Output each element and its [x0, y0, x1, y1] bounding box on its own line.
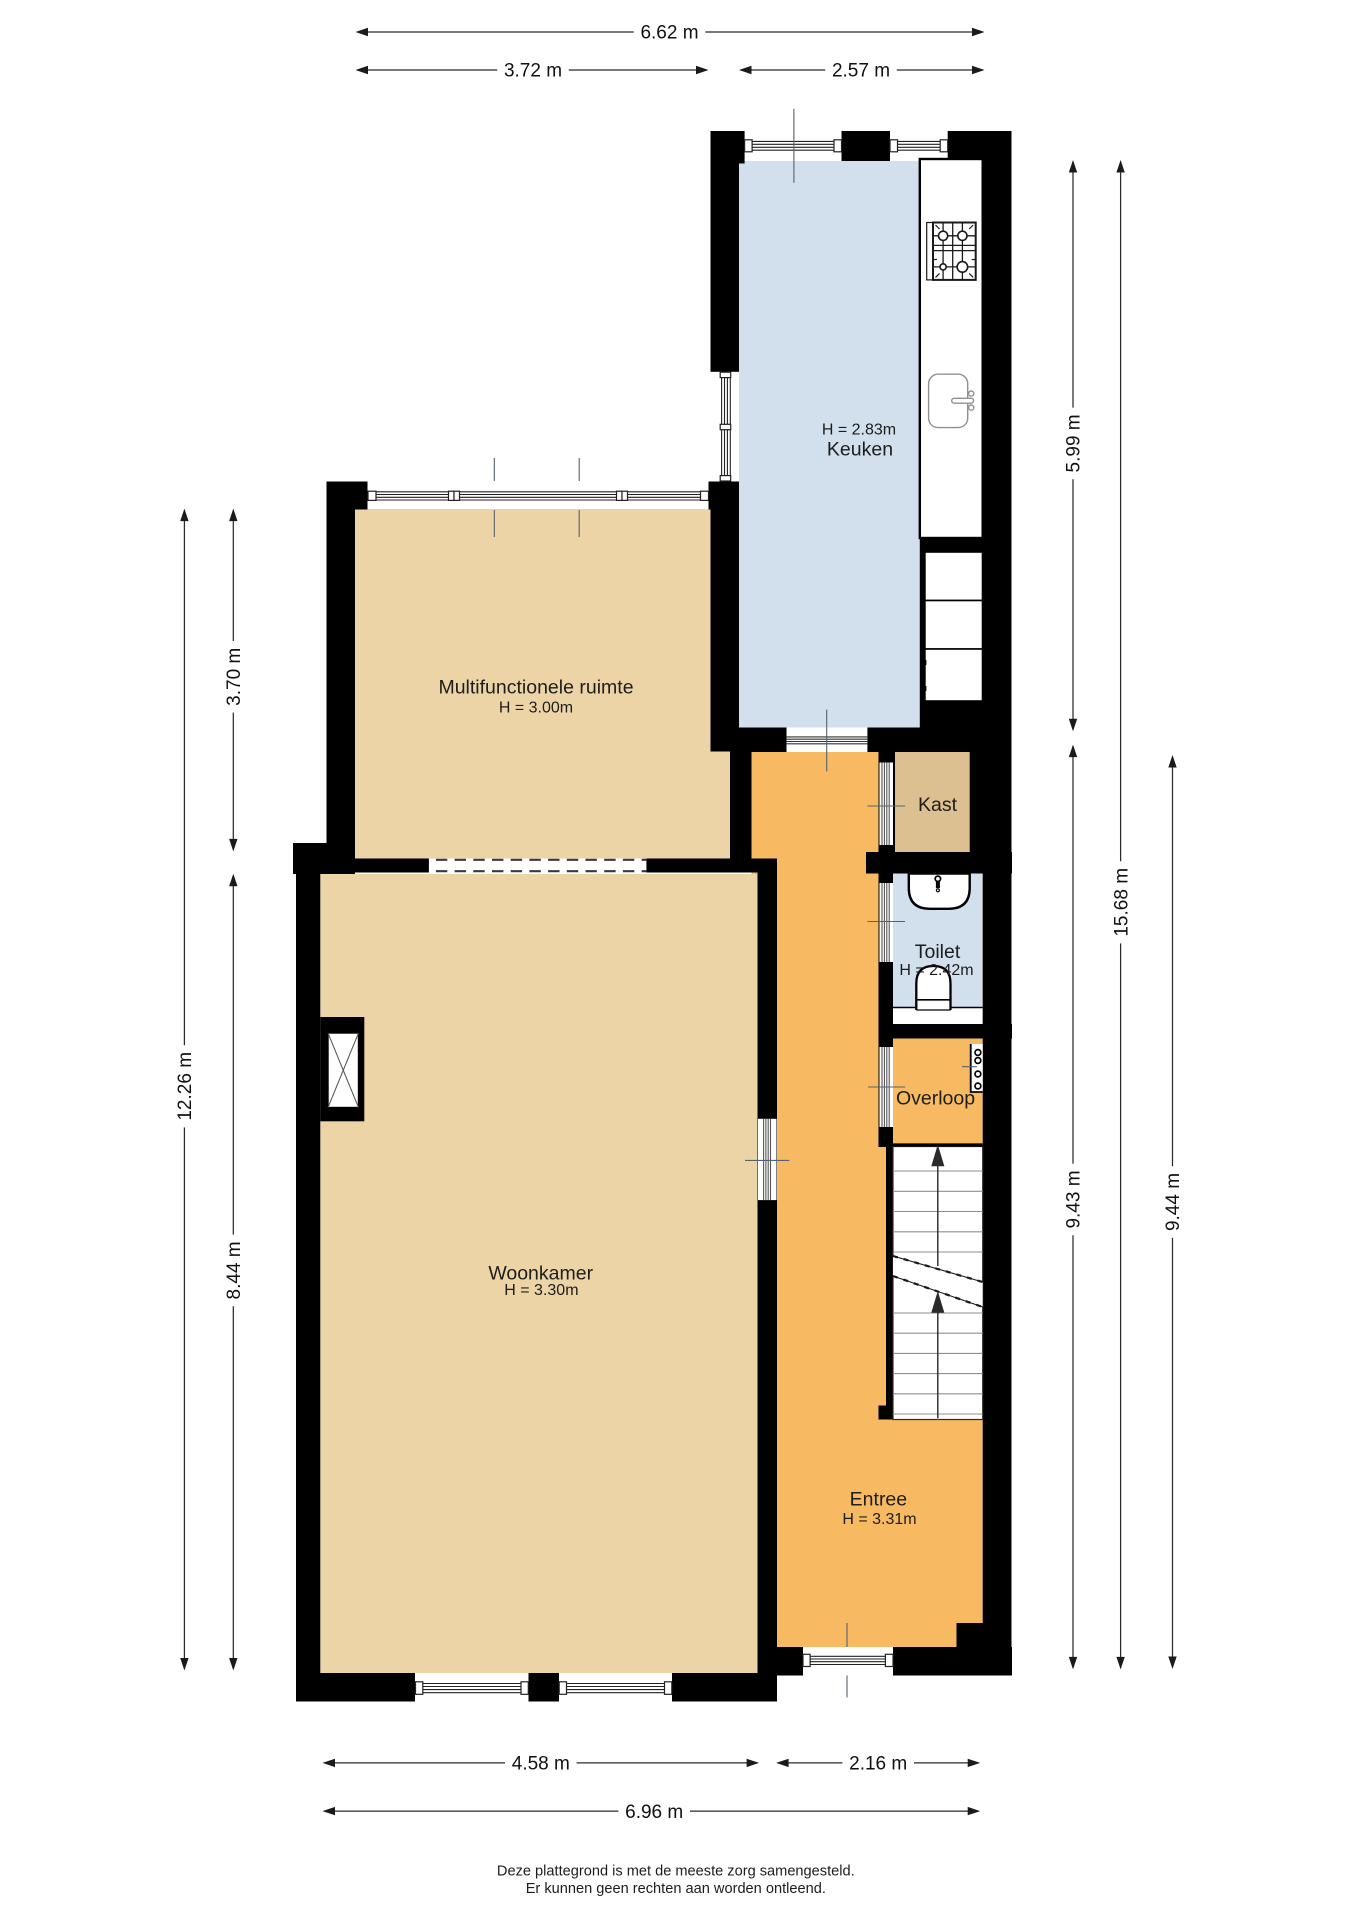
svg-text:Multifunctionele ruimte: Multifunctionele ruimte	[438, 677, 633, 699]
svg-text:H = 3.00m: H = 3.00m	[499, 700, 573, 717]
svg-text:6.96 m: 6.96 m	[625, 1802, 683, 1823]
svg-text:H = 3.30m: H = 3.30m	[504, 1282, 578, 1299]
svg-text:3.72 m: 3.72 m	[504, 61, 562, 82]
svg-text:Deze plattegrond is met de mee: Deze plattegrond is met de meeste zorg s…	[497, 1864, 855, 1880]
svg-text:5.99 m: 5.99 m	[1064, 414, 1085, 472]
svg-text:2.16 m: 2.16 m	[849, 1754, 907, 1775]
svg-text:9.44 m: 9.44 m	[1163, 1173, 1184, 1231]
svg-text:4.58 m: 4.58 m	[512, 1754, 570, 1775]
svg-text:Overloop: Overloop	[896, 1088, 975, 1110]
svg-text:Toilet: Toilet	[915, 941, 961, 963]
svg-text:H = 2.42m: H = 2.42m	[899, 962, 973, 979]
svg-text:6.62 m: 6.62 m	[640, 23, 698, 44]
svg-text:Keuken: Keuken	[827, 439, 893, 461]
svg-text:Er kunnen geen rechten aan wor: Er kunnen geen rechten aan worden ontlee…	[526, 1881, 826, 1897]
svg-text:12.26 m: 12.26 m	[175, 1052, 196, 1121]
svg-text:3.70 m: 3.70 m	[224, 648, 245, 706]
svg-text:H = 2.83m: H = 2.83m	[822, 422, 896, 439]
svg-text:Entree: Entree	[850, 1489, 907, 1511]
svg-text:9.43 m: 9.43 m	[1064, 1170, 1085, 1228]
svg-text:2.57 m: 2.57 m	[832, 61, 890, 82]
svg-text:8.44 m: 8.44 m	[224, 1241, 245, 1299]
svg-text:15.68 m: 15.68 m	[1111, 868, 1132, 937]
svg-text:H = 3.31m: H = 3.31m	[842, 1511, 916, 1528]
svg-text:Kast: Kast	[918, 794, 958, 816]
